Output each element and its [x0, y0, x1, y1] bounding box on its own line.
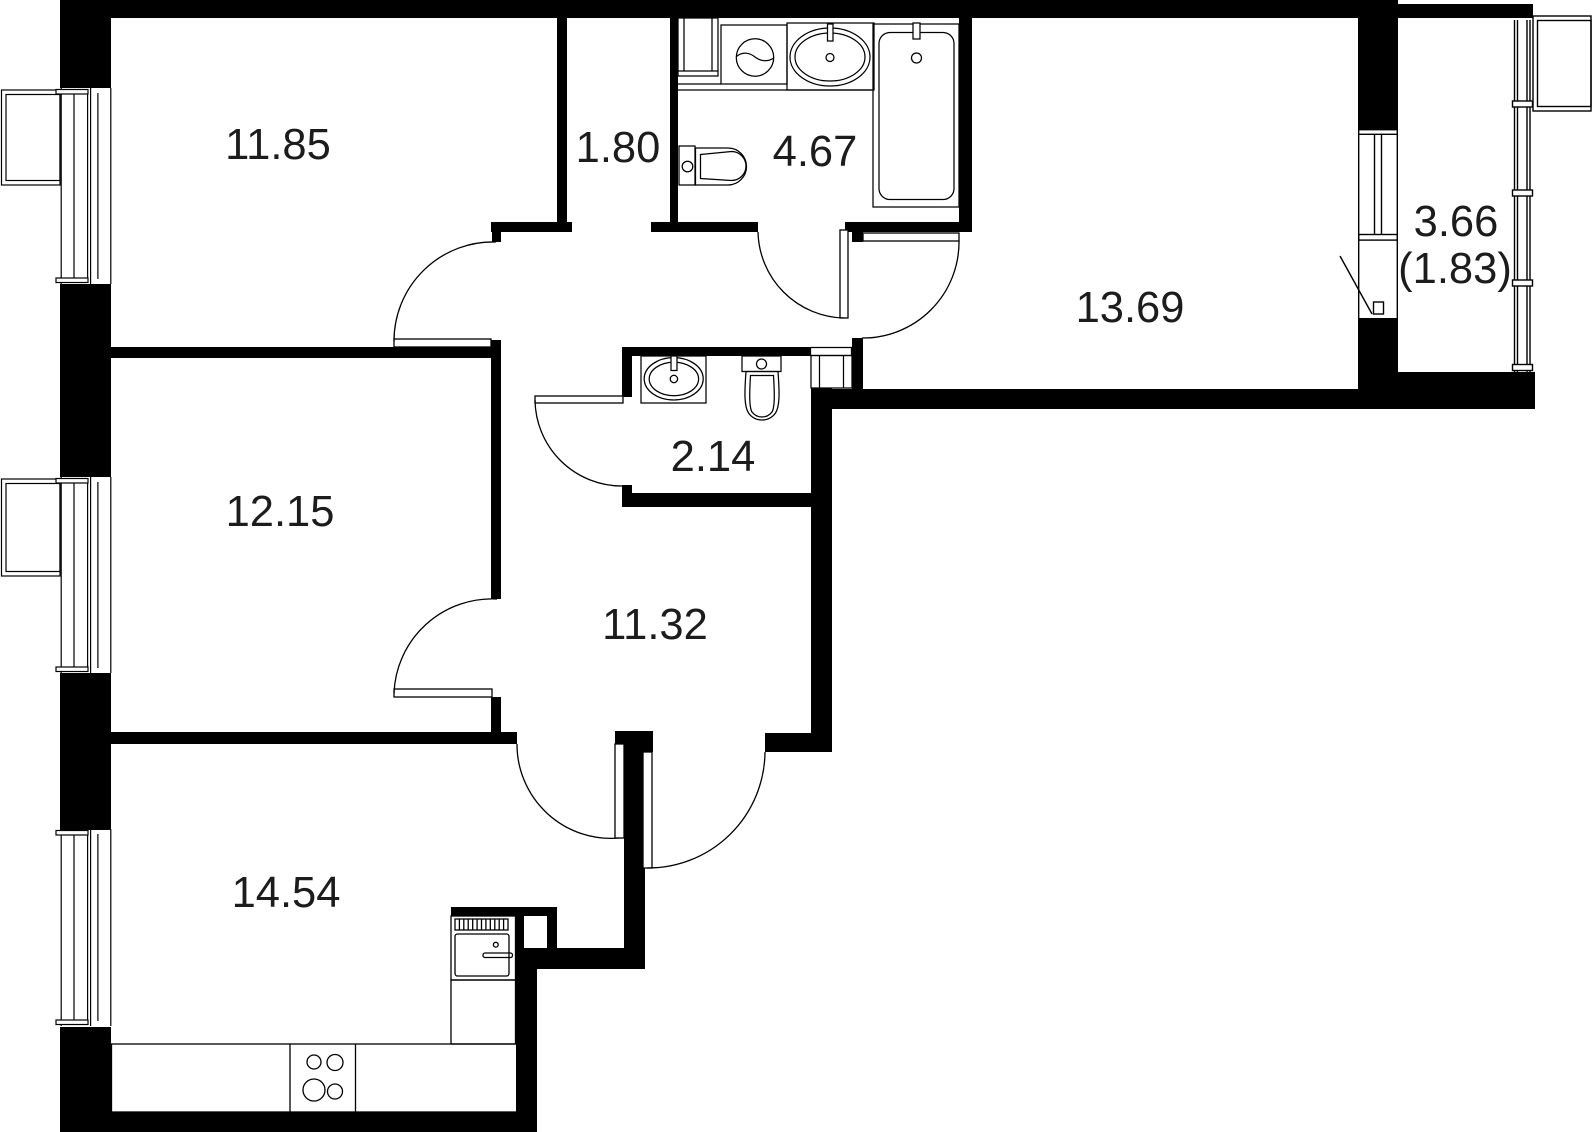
svg-text:4.67: 4.67: [773, 128, 858, 176]
svg-text:(1.83): (1.83): [1398, 245, 1512, 293]
svg-text:13.69: 13.69: [1076, 284, 1185, 332]
svg-text:1.80: 1.80: [576, 124, 661, 172]
svg-text:2.14: 2.14: [671, 433, 756, 481]
svg-text:3.66: 3.66: [1414, 198, 1499, 246]
svg-text:12.15: 12.15: [226, 488, 335, 536]
svg-text:11.85: 11.85: [225, 121, 331, 169]
svg-text:11.32: 11.32: [602, 601, 708, 649]
svg-text:14.54: 14.54: [232, 869, 341, 917]
